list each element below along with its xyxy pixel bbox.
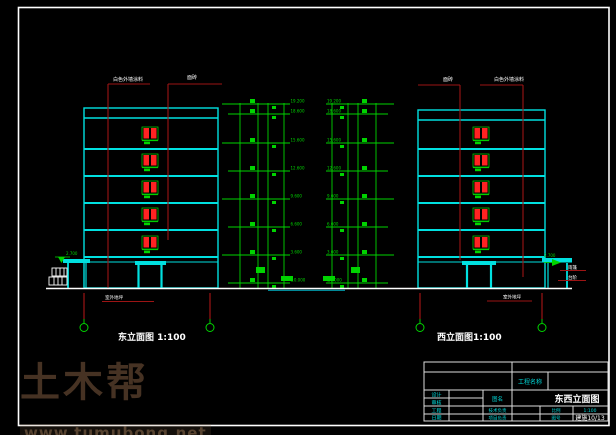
level-mark-icon — [272, 285, 276, 288]
level-label: 6.600 — [327, 222, 339, 227]
level-label: 6.600 — [291, 222, 303, 227]
window-icon — [473, 154, 489, 171]
west-material-label-1: 面砖 — [443, 76, 453, 83]
level-mark-icon — [362, 166, 367, 170]
drawing-name-label: 图名 — [492, 395, 503, 403]
tb-mid-label-1: 技术负责 — [489, 407, 507, 414]
level-mark-icon — [272, 173, 276, 176]
level-mark-icon — [340, 116, 344, 119]
east-entrance-door — [135, 261, 166, 288]
window-icon — [142, 181, 158, 198]
east-material-label-2: 面砖 — [187, 74, 197, 81]
level-label: 3.600 — [327, 250, 339, 255]
tb-row-label-project: 工程 — [431, 408, 441, 415]
level-mark-icon — [272, 201, 276, 204]
east-porch-level-text: 2.700 — [66, 251, 78, 256]
axis-marker — [80, 293, 88, 332]
cad-canvas: 2.700 白色外墙涂料 面砖 室外地坪 — [0, 0, 616, 435]
east-elevation-title: 东立面图 1:100 — [118, 331, 186, 343]
title-block: 工程名称 设计 审核 工程 日期 图名 东西立面图 技术负责 项目负责 比例 1… — [424, 362, 608, 422]
level-label: 3.600 — [291, 250, 303, 255]
window-icon — [142, 236, 158, 253]
level-mark-icon — [250, 250, 255, 254]
axis-marker — [538, 293, 546, 332]
level-label: 15.600 — [327, 138, 341, 143]
project-name-label: 工程名称 — [518, 378, 542, 386]
level-mark-icon — [272, 229, 276, 232]
tb-mid-label-2: 项目负责 — [489, 415, 507, 422]
level-mark-icon — [340, 285, 344, 288]
west-entrance-door — [462, 261, 496, 288]
west-material-label-2: 白色外墙涂料 — [494, 76, 524, 83]
sheet-number-value: 建施10/13 — [575, 414, 604, 422]
level-mark-icon — [340, 201, 344, 204]
sheet-number-label: 图号 — [552, 416, 561, 422]
east-entry-steps — [49, 268, 67, 285]
east-windows — [142, 127, 158, 253]
axis-marker — [416, 293, 424, 332]
level-mark-icon — [250, 138, 255, 142]
west-porch-note-2: 台阶 — [568, 274, 577, 281]
level-mark-icon — [340, 173, 344, 176]
level-label: 12.600 — [327, 166, 341, 171]
sheet-frame — [19, 8, 610, 426]
level-mark-icon — [340, 229, 344, 232]
level-mark-icon — [250, 222, 255, 226]
scale-value: 1:100 — [584, 408, 597, 414]
level-mark-icon — [340, 257, 344, 260]
level-mark-icon — [362, 99, 367, 103]
level-mark-icon — [272, 145, 276, 148]
axis-grid-markers — [80, 293, 546, 332]
cad-drawing-sheet: 2.700 白色外墙涂料 面砖 室外地坪 — [0, 0, 616, 435]
west-windows — [473, 127, 489, 253]
window-icon — [473, 127, 489, 144]
west-ground-note: 室外地坪 — [503, 294, 521, 301]
level-mark-icon — [250, 109, 255, 113]
window-icon — [142, 208, 158, 225]
west-side-porch — [542, 258, 572, 288]
strip-bottom-marks — [256, 267, 360, 281]
east-material-label-1: 白色外墙涂料 — [113, 76, 143, 83]
level-mark-icon — [272, 257, 276, 260]
axis-marker — [206, 293, 214, 332]
level-label: 18.600 — [327, 109, 341, 114]
window-icon — [473, 208, 489, 225]
title-block-grid — [424, 362, 608, 421]
level-label: 19.200 — [327, 99, 341, 104]
level-dimension-rows: 19.20019.20018.60018.60015.60015.60012.6… — [222, 99, 394, 289]
window-icon — [142, 127, 158, 144]
west-elevation-title: 西立面图1:100 — [437, 331, 502, 343]
level-label: 12.600 — [291, 166, 305, 171]
level-mark-icon — [250, 194, 255, 198]
tb-row-label-design: 设计 — [431, 392, 441, 399]
level-mark-icon — [250, 99, 255, 103]
level-mark-icon — [362, 278, 367, 282]
west-material-leaders — [418, 85, 523, 277]
level-mark-icon — [272, 106, 276, 109]
window-icon — [473, 236, 489, 253]
right-level-strip-verticals — [332, 103, 376, 288]
level-label: 19.200 — [291, 99, 305, 104]
left-level-strip-verticals — [240, 103, 284, 288]
west-porch-level-text: 2.700 — [544, 253, 556, 258]
west-porch-note-1: 雨篷 — [568, 264, 577, 271]
east-ground-note: 室外地坪 — [105, 294, 123, 301]
window-icon — [473, 181, 489, 198]
scale-label: 比例 — [552, 407, 561, 414]
level-mark-icon — [250, 278, 255, 282]
window-icon — [142, 154, 158, 171]
drawing-name-value: 东西立面图 — [554, 393, 599, 405]
level-label: 15.600 — [291, 138, 305, 143]
level-mark-icon — [250, 166, 255, 170]
level-mark-icon — [272, 116, 276, 119]
level-mark-icon — [362, 250, 367, 254]
level-mark-icon — [362, 222, 367, 226]
tb-row-label-check: 审核 — [431, 400, 441, 407]
tb-row-label-date: 日期 — [431, 416, 441, 422]
level-mark-icon — [362, 109, 367, 113]
level-label: 9.600 — [291, 194, 303, 199]
level-mark-icon — [362, 138, 367, 142]
level-mark-icon — [340, 145, 344, 148]
level-label: 9.600 — [327, 194, 339, 199]
level-label: 18.600 — [291, 109, 305, 114]
level-mark-icon — [362, 194, 367, 198]
